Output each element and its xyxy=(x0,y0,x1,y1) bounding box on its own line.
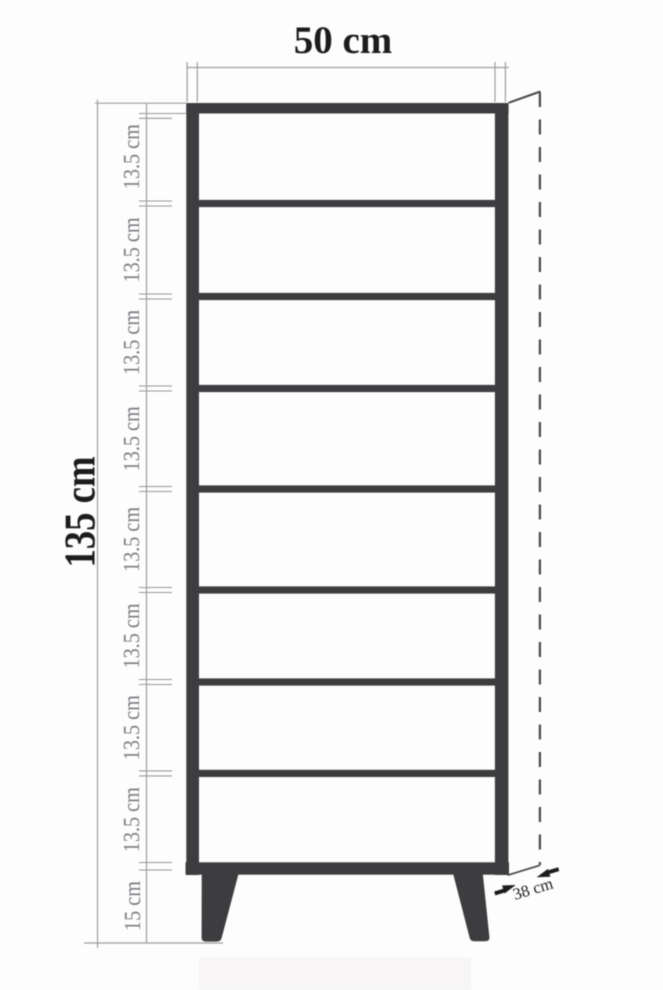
svg-text:13.5 cm: 13.5 cm xyxy=(120,603,145,668)
svg-text:13.5 cm: 13.5 cm xyxy=(120,507,145,572)
svg-text:13.5 cm: 13.5 cm xyxy=(120,217,145,282)
svg-text:135 cm: 135 cm xyxy=(55,456,104,567)
svg-text:13.5 cm: 13.5 cm xyxy=(120,310,145,375)
svg-text:13.5 cm: 13.5 cm xyxy=(120,695,145,760)
svg-text:13.5 cm: 13.5 cm xyxy=(120,124,145,189)
svg-text:50 cm: 50 cm xyxy=(294,19,393,62)
svg-text:13.5 cm: 13.5 cm xyxy=(120,406,145,471)
svg-text:13.5 cm: 13.5 cm xyxy=(120,787,145,852)
svg-text:15 cm: 15 cm xyxy=(121,881,146,931)
